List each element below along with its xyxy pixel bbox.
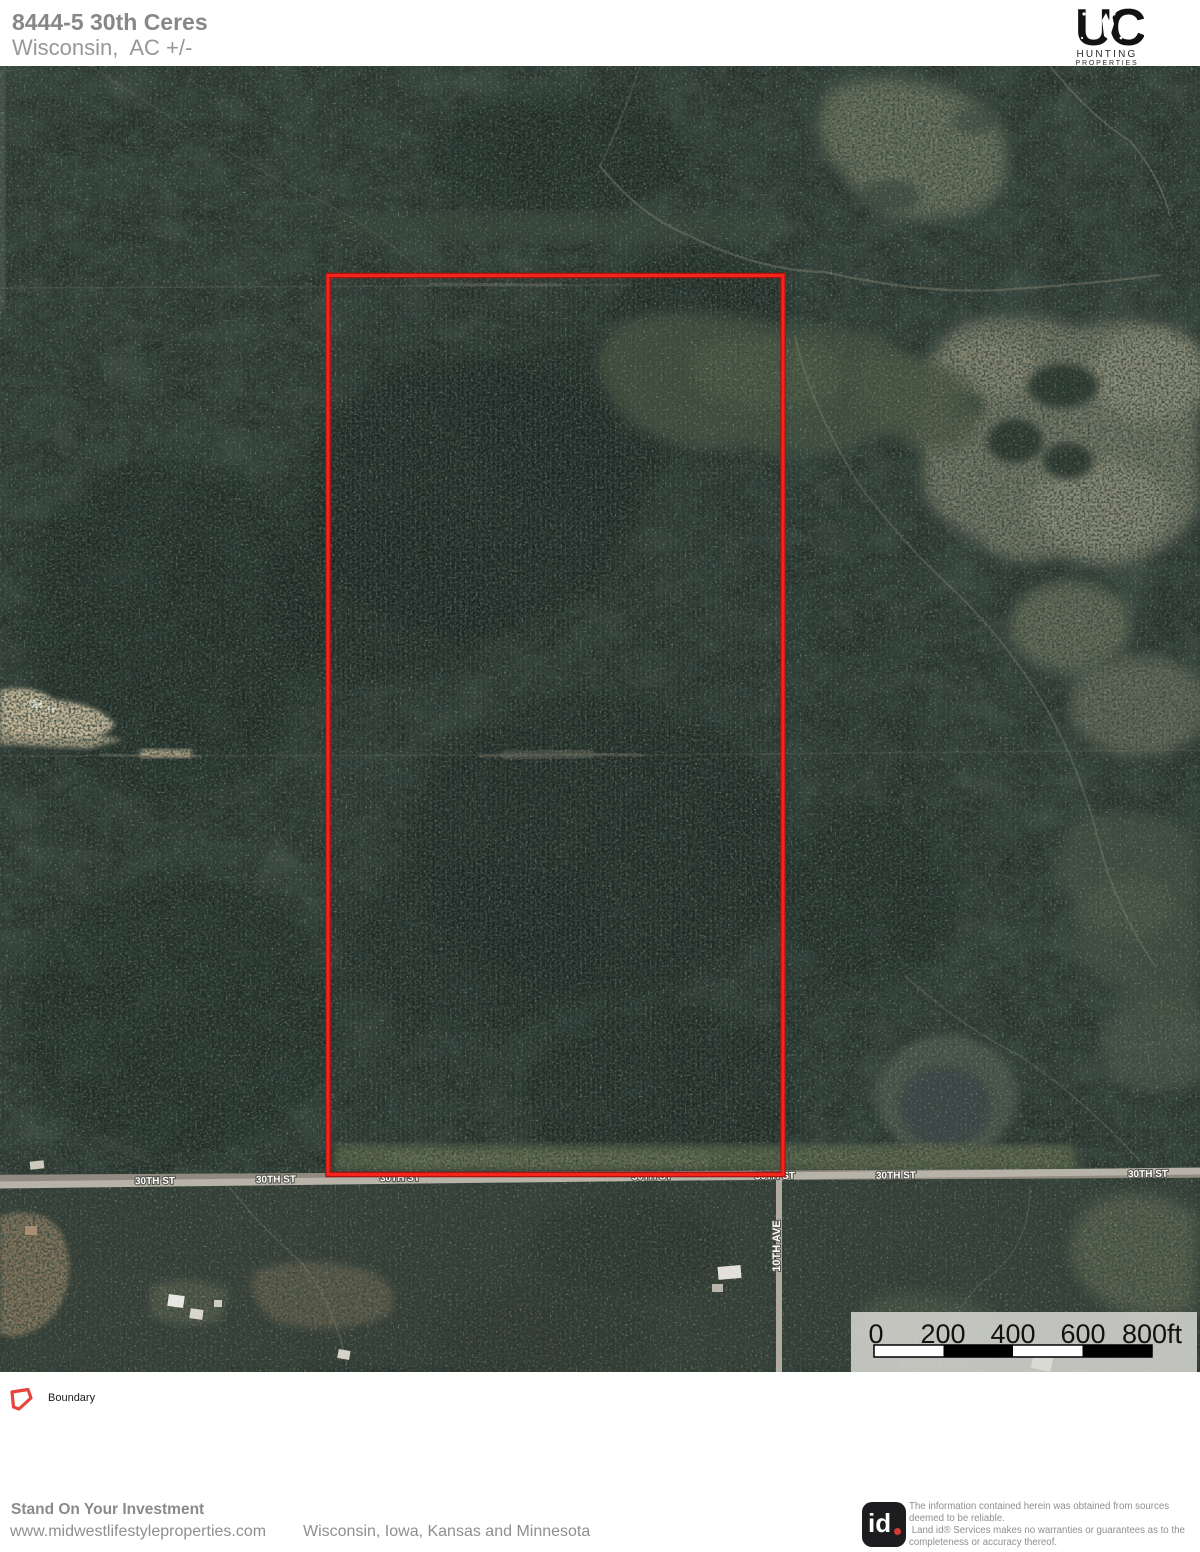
svg-text:30TH ST: 30TH ST <box>135 1176 175 1187</box>
svg-text:30TH ST: 30TH ST <box>1128 1169 1168 1180</box>
svg-text:30TH ST: 30TH ST <box>256 1174 296 1185</box>
svg-text:HUNTING: HUNTING <box>1077 49 1138 60</box>
svg-text:10TH AVE: 10TH AVE <box>771 1220 783 1271</box>
svg-text:30TH ST: 30TH ST <box>876 1170 916 1181</box>
